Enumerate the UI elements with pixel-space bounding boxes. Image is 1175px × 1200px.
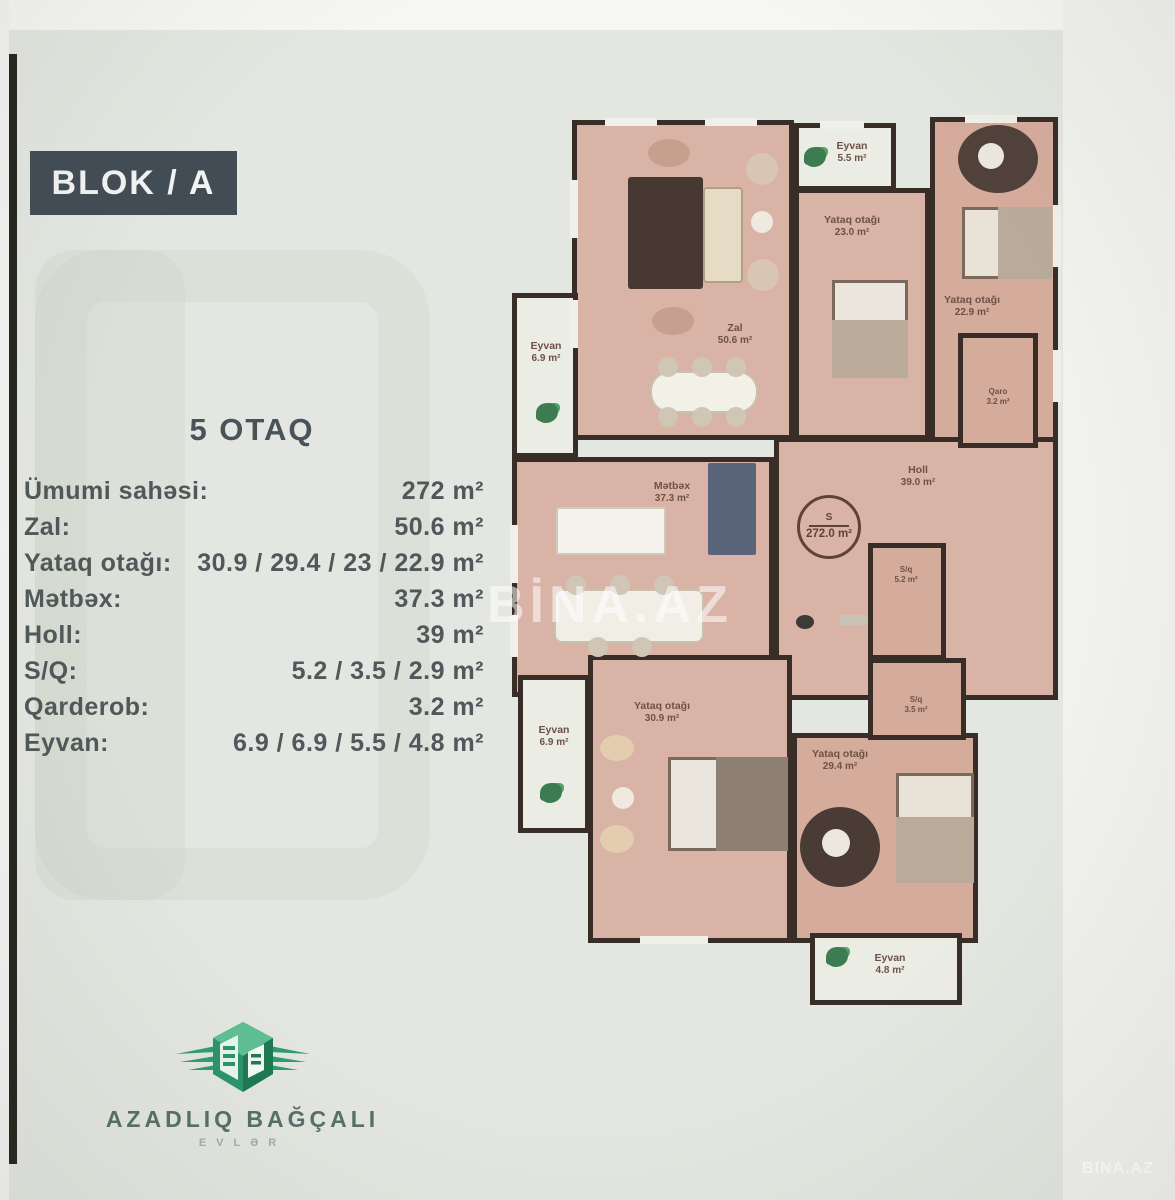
room-name: Yataq otağı <box>634 700 690 713</box>
bed-blanket <box>998 207 1052 279</box>
watermark-corner: BINA.AZ <box>1082 1160 1154 1178</box>
chair <box>726 357 746 377</box>
window <box>570 180 578 238</box>
room-area: 37.3 m² <box>654 493 690 506</box>
page-top-margin <box>0 0 1175 30</box>
room-label-yataq-294: Yataq otağı 29.4 m² <box>812 748 868 774</box>
chair <box>658 407 678 427</box>
room-label-yataq-229: Yataq otağı 22.9 m² <box>944 294 1000 320</box>
total-area-stamp: S 272.0 m² <box>797 495 861 559</box>
room-name: Eyvan <box>875 952 906 965</box>
spec-label: Zal: <box>24 513 70 542</box>
room-name: Yataq otağı <box>944 294 1000 307</box>
left-border-rule <box>9 54 17 1164</box>
room-area: 6.9 m² <box>531 353 562 366</box>
room-label-zal: Zal 50.6 m² <box>718 322 752 348</box>
room-label-eyvan-bl: Eyvan 6.9 m² <box>539 724 570 750</box>
spec-label: Eyvan: <box>24 729 109 758</box>
room-label-eyvan-left: Eyvan 6.9 m² <box>531 340 562 366</box>
window <box>570 300 578 348</box>
spec-row-sq: S/Q: 5.2 / 3.5 / 2.9 m² <box>24 657 484 693</box>
room-label-yataq-23: Yataq otağı 23.0 m² <box>824 214 880 240</box>
kitchen-island <box>556 507 666 555</box>
window <box>820 121 864 129</box>
spec-label: Yataq otağı: <box>24 549 172 578</box>
watermark-center: BİNA.AZ <box>487 575 733 635</box>
room-area: 39.0 m² <box>901 477 935 490</box>
armchair <box>746 153 778 185</box>
room-name: S/q <box>894 565 917 575</box>
window <box>605 118 657 126</box>
room-label-metbex: Mətbəx 37.3 m² <box>654 480 690 506</box>
room-label-eyvan-top: Eyvan 5.5 m² <box>837 140 868 166</box>
spec-value: 50.6 m² <box>394 513 484 542</box>
room-area: 23.0 m² <box>824 227 880 240</box>
room-label-sq-35: S/q 3.5 m² <box>904 695 927 715</box>
spec-label: Qarderob: <box>24 693 149 722</box>
room-name: Yataq otağı <box>824 214 880 227</box>
logo-brand-text: AZADLIQ BAĞÇALI <box>70 1106 415 1133</box>
window <box>640 936 708 944</box>
stamp-total-area: 272.0 m² <box>806 529 852 541</box>
armchair <box>747 259 779 291</box>
spec-row-yataq: Yataq otağı: 30.9 / 29.4 / 23 / 22.9 m² <box>24 549 484 585</box>
room-name: S/q <box>904 695 927 705</box>
chair <box>692 407 712 427</box>
block-label-badge: BLOK / A <box>30 151 237 215</box>
developer-logo: AZADLIQ BAĞÇALI EVLƏR <box>70 1018 415 1149</box>
room-eyvan-bl <box>518 675 590 833</box>
spec-label: Holl: <box>24 621 82 650</box>
room-area: 50.6 m² <box>718 335 752 348</box>
room-label-eyvan-bottom: Eyvan 4.8 m² <box>875 952 906 978</box>
armchair <box>648 139 690 167</box>
apartment-type-title: 5 OTAQ <box>22 412 482 448</box>
stamp-s: S <box>826 513 833 523</box>
room-area: 30.9 m² <box>634 713 690 726</box>
spec-value: 6.9 / 6.9 / 5.5 / 4.8 m² <box>233 729 484 758</box>
room-area: 3.2 m² <box>986 397 1009 407</box>
chair <box>692 357 712 377</box>
room-area: 22.9 m² <box>944 307 1000 320</box>
bed-blanket <box>716 757 788 851</box>
window <box>1053 205 1061 267</box>
room-area: 4.8 m² <box>875 965 906 978</box>
spec-value: 3.2 m² <box>409 693 484 722</box>
ottoman <box>600 825 634 853</box>
bed-blanket <box>896 817 974 883</box>
spec-row-umumi: Ümumi sahəsi: 272 m² <box>24 477 484 513</box>
room-name: Mətbəx <box>654 480 690 493</box>
spec-label: Ümumi sahəsi: <box>24 477 208 506</box>
spec-label: S/Q: <box>24 657 77 686</box>
spec-list: Ümumi sahəsi: 272 m² Zal: 50.6 m² Yataq … <box>24 477 484 765</box>
room-label-qarderob: Qaro 3.2 m² <box>986 387 1009 407</box>
chair <box>726 407 746 427</box>
room-name: Yataq otağı <box>812 748 868 761</box>
ottoman <box>600 735 634 761</box>
logo-building-wings-icon <box>168 1018 318 1096</box>
spec-row-eyvan: Eyvan: 6.9 / 6.9 / 5.5 / 4.8 m² <box>24 729 484 765</box>
stamp-divider <box>809 525 849 527</box>
side-table <box>751 211 773 233</box>
chair <box>588 637 608 657</box>
room-sq-52 <box>868 543 946 660</box>
spec-value: 30.9 / 29.4 / 23 / 22.9 m² <box>197 549 484 578</box>
bed-blanket <box>832 320 908 378</box>
spec-label: Mətbəx: <box>24 585 122 614</box>
room-label-holl: Holl 39.0 m² <box>901 464 935 490</box>
spec-value: 39 m² <box>416 621 484 650</box>
floor-plan: Zal 50.6 m² Eyvan 5.5 m² Yataq otağı 23.… <box>500 95 1100 1010</box>
window <box>965 115 1017 123</box>
logo-sub-text: EVLƏR <box>70 1137 415 1149</box>
rug-dot <box>978 143 1004 169</box>
window <box>1053 350 1061 402</box>
brochure-page: { "page": { "block_label": "BLOK / A", "… <box>0 0 1175 1200</box>
room-area: 5.2 m² <box>894 575 917 585</box>
tv-unit <box>628 177 703 289</box>
page-left-margin <box>0 0 9 1200</box>
spec-row-zal: Zal: 50.6 m² <box>24 513 484 549</box>
chair <box>632 637 652 657</box>
console <box>796 615 814 629</box>
room-name: Eyvan <box>531 340 562 353</box>
spec-value: 5.2 / 3.5 / 2.9 m² <box>292 657 484 686</box>
room-eyvan-left <box>512 293 578 458</box>
armchair <box>652 307 694 335</box>
sofa <box>703 187 743 283</box>
room-area: 5.5 m² <box>837 153 868 166</box>
spec-row-holl: Holl: 39 m² <box>24 621 484 657</box>
rug-dot <box>822 829 850 857</box>
room-area: 3.5 m² <box>904 705 927 715</box>
spec-row-metbex: Mətbəx: 37.3 m² <box>24 585 484 621</box>
room-name: Holl <box>901 464 935 477</box>
chair <box>658 357 678 377</box>
spec-row-qarderob: Qarderob: 3.2 m² <box>24 693 484 729</box>
spec-value: 37.3 m² <box>394 585 484 614</box>
ottoman <box>612 787 634 809</box>
room-name: Zal <box>718 322 752 335</box>
room-label-yataq-309: Yataq otağı 30.9 m² <box>634 700 690 726</box>
room-name: Qaro <box>986 387 1009 397</box>
block-label: BLOK / A <box>52 164 216 203</box>
spec-value: 272 m² <box>402 477 484 506</box>
window <box>705 118 757 126</box>
room-label-sq-52: S/q 5.2 m² <box>894 565 917 585</box>
room-name: Eyvan <box>539 724 570 737</box>
room-area: 6.9 m² <box>539 737 570 750</box>
room-name: Eyvan <box>837 140 868 153</box>
room-area: 29.4 m² <box>812 761 868 774</box>
kitchen-cabinet <box>708 463 756 555</box>
